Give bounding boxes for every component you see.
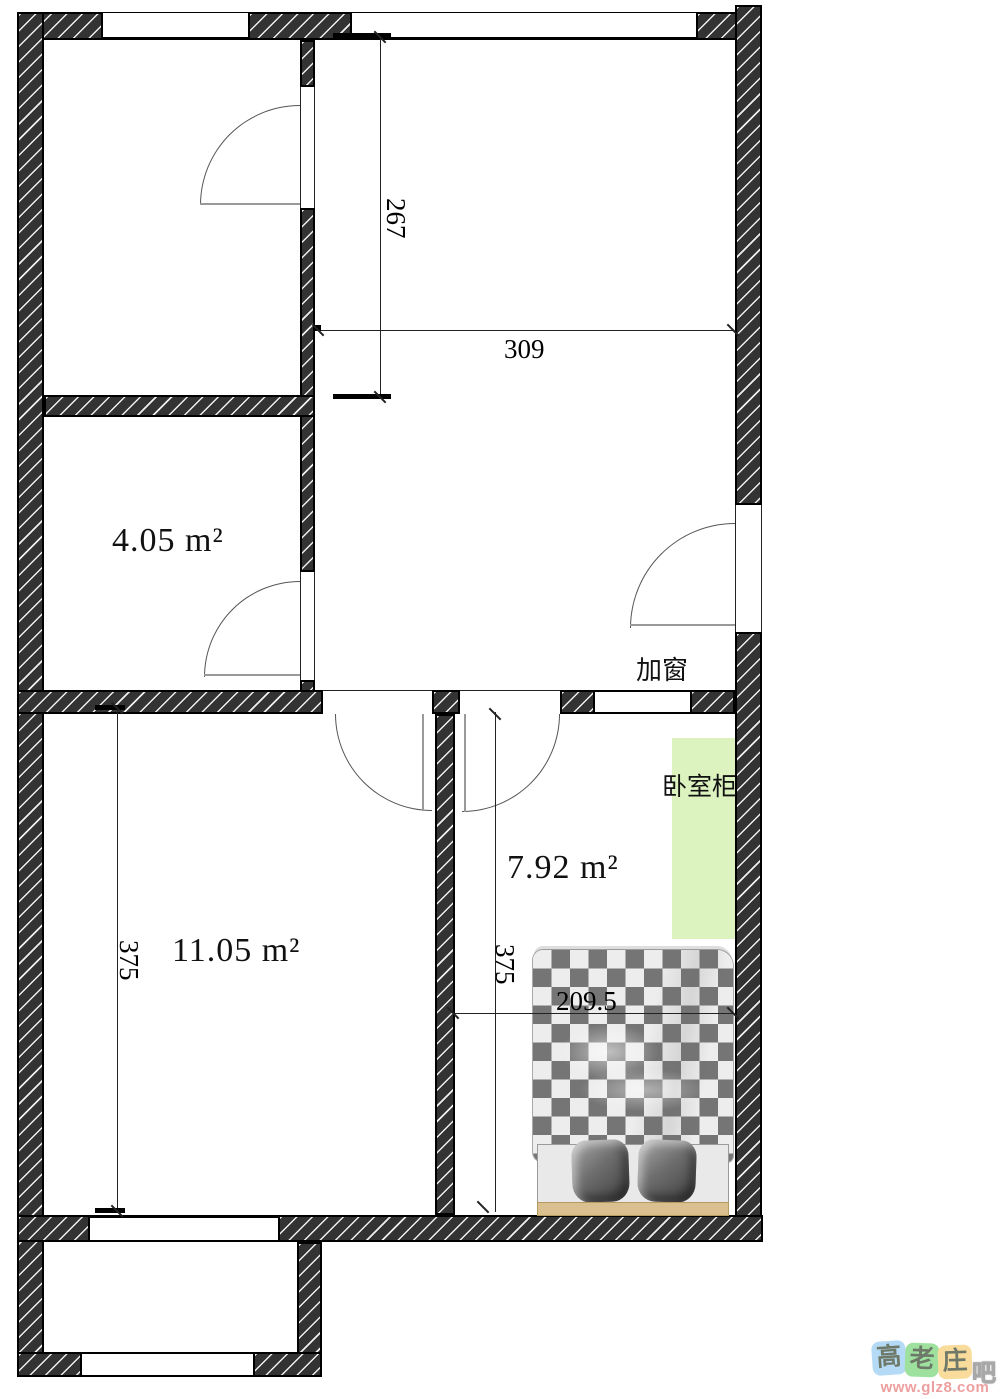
watermark-tile-1: 高 bbox=[871, 1340, 907, 1376]
wall-mid-band-b bbox=[432, 690, 460, 714]
wall-divider-vert-b bbox=[300, 208, 315, 572]
door-opening-top-left-room bbox=[300, 87, 315, 208]
window-balcony bbox=[82, 1352, 253, 1377]
watermark-url: www.glz8.com bbox=[872, 1379, 998, 1396]
dim-375-left-text: 375 bbox=[116, 940, 142, 981]
watermark: 高 老 庄 吧 www.glz8.com bbox=[872, 1333, 1000, 1395]
bed-blanket bbox=[533, 950, 733, 1162]
wall-top-c bbox=[696, 12, 737, 40]
wall-mid-band-a bbox=[17, 690, 323, 714]
dim-267-text: 267 bbox=[383, 198, 409, 239]
room-label-bedroom: 7.92 m² bbox=[507, 849, 619, 887]
wall-mid-vertical bbox=[435, 714, 455, 1215]
door-arc-living-room bbox=[630, 523, 735, 628]
window-bottom bbox=[90, 1215, 278, 1242]
bed-pillow-right bbox=[637, 1139, 697, 1203]
dim-375-bedroom-text: 375 bbox=[492, 944, 518, 985]
door-arc-large-room bbox=[335, 714, 432, 811]
bedroom-cabinet-label: 卧室柜 bbox=[662, 767, 737, 803]
wall-right-lower bbox=[735, 632, 762, 1217]
watermark-tile-2: 老 bbox=[904, 1342, 939, 1377]
dim-209-text: 209.5 bbox=[556, 988, 617, 1014]
bed-sheet bbox=[537, 1144, 729, 1204]
door-opening-small-room bbox=[300, 572, 315, 680]
floor-plan: 卧室柜 4.05 m² 11.05 m² 7.92 m² 加窗 267 309 … bbox=[0, 0, 1000, 1399]
dim-309-text: 309 bbox=[504, 336, 545, 362]
room-label-small: 4.05 m² bbox=[112, 522, 224, 560]
door-leaf-living-room bbox=[630, 624, 735, 626]
door-arc-small-room bbox=[204, 581, 300, 677]
door-opening-bedroom bbox=[460, 690, 560, 714]
wall-right-upper bbox=[735, 5, 762, 505]
door-arc-bedroom bbox=[462, 714, 560, 812]
door-leaf-small-room bbox=[204, 674, 300, 676]
door-arc-top-left-room bbox=[200, 105, 300, 205]
wall-balcony-bottom-a bbox=[17, 1352, 82, 1377]
window-added bbox=[595, 690, 690, 714]
room-label-large: 11.05 m² bbox=[172, 932, 300, 970]
door-leaf-top-left-room bbox=[200, 203, 300, 205]
bed-pillow-left bbox=[571, 1139, 630, 1203]
door-leaf-large-room bbox=[422, 714, 424, 811]
door-opening-living-room bbox=[735, 505, 762, 632]
watermark-tile-3: 庄 bbox=[937, 1344, 972, 1379]
wall-balcony-bottom-b bbox=[253, 1352, 322, 1377]
window-top-left bbox=[103, 12, 248, 40]
wall-mid-band-c bbox=[560, 690, 595, 714]
wall-divider-vert-a bbox=[300, 40, 315, 87]
wall-room-divider-horiz bbox=[44, 395, 315, 417]
wall-bottom-a bbox=[17, 1215, 90, 1242]
window-top-right bbox=[352, 12, 696, 40]
wall-mid-band-d bbox=[690, 690, 735, 714]
dim-375-bedroom-tick-bottom bbox=[477, 1201, 490, 1214]
bed-headboard bbox=[537, 1202, 729, 1216]
dim-309-line bbox=[318, 330, 733, 331]
add-window-label: 加窗 bbox=[636, 650, 688, 687]
double-bed bbox=[533, 944, 735, 1216]
wall-bottom-b bbox=[278, 1215, 763, 1242]
door-leaf-bedroom bbox=[464, 714, 466, 812]
door-opening-large-room bbox=[323, 690, 432, 714]
